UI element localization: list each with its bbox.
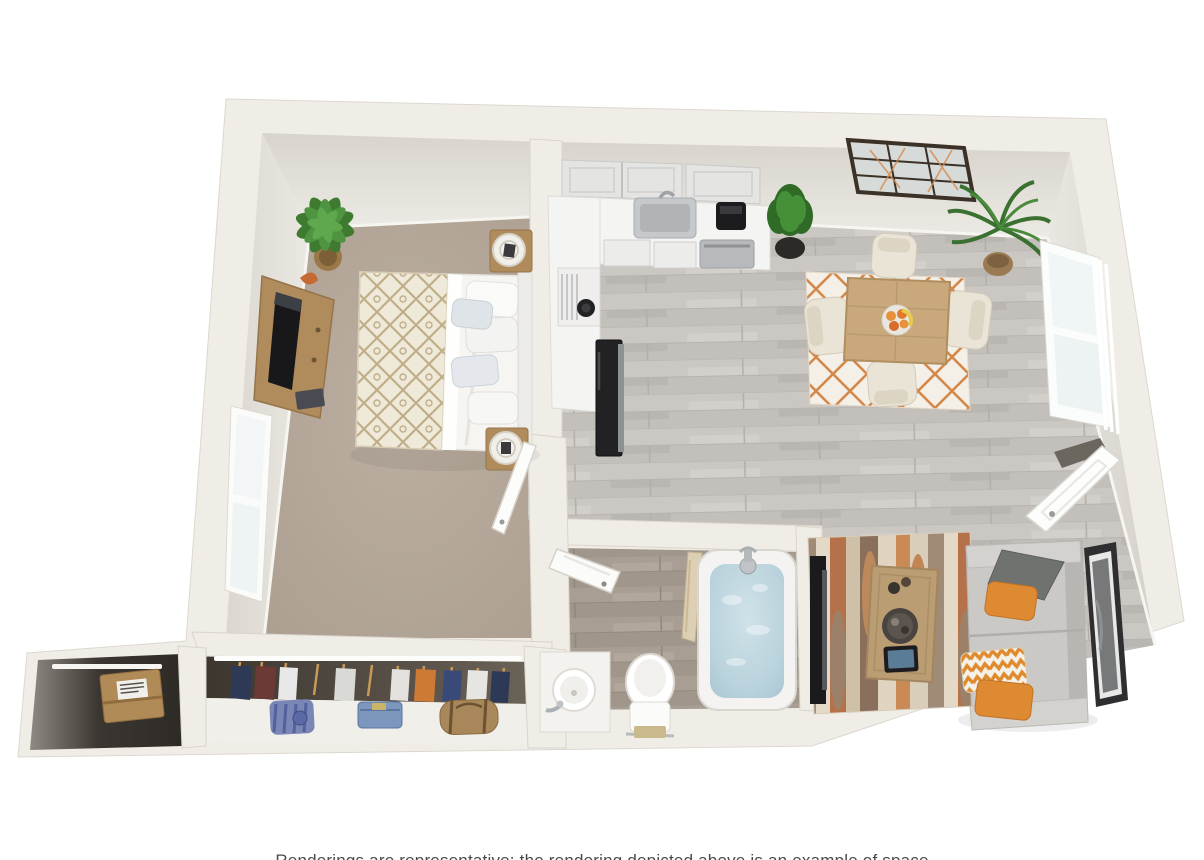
dining-window — [1040, 240, 1118, 434]
bed — [356, 270, 532, 454]
dining-chair-top — [871, 233, 918, 280]
coffee-table — [866, 566, 938, 682]
folded-shirt — [269, 699, 315, 735]
duvet — [356, 272, 448, 450]
range — [558, 268, 600, 326]
nightstand-top — [490, 230, 532, 272]
pillow-orange-top — [984, 581, 1038, 622]
floor-plan-page: Renderings are representative; the rende… — [0, 0, 1204, 860]
duffel-bag — [439, 699, 498, 735]
dishwasher — [700, 240, 754, 268]
disclaimer-caption: Renderings are representative; the rende… — [0, 851, 1204, 860]
wall-mirror — [848, 140, 974, 200]
closet-rod — [214, 656, 522, 661]
storage-box — [100, 669, 165, 723]
refrigerator — [596, 340, 624, 456]
living-tv — [810, 556, 827, 704]
folded-jeans — [358, 702, 402, 728]
bathroom-left-wall — [528, 434, 570, 655]
bathtub — [698, 548, 796, 710]
closet-storage-divider — [178, 646, 206, 748]
vanity-sink — [540, 652, 610, 732]
pillow-orange-bottom — [974, 679, 1033, 721]
tablet — [883, 645, 918, 673]
living-area — [808, 532, 1128, 732]
toilet — [626, 654, 674, 738]
storage-shelf — [52, 664, 162, 669]
kitchen-sink — [634, 192, 696, 238]
floor-plan-rendering — [0, 0, 1204, 860]
fruit-bowl — [882, 305, 912, 335]
sofa — [958, 540, 1098, 732]
dining-chair-bottom — [866, 358, 917, 407]
headboard — [518, 270, 532, 454]
